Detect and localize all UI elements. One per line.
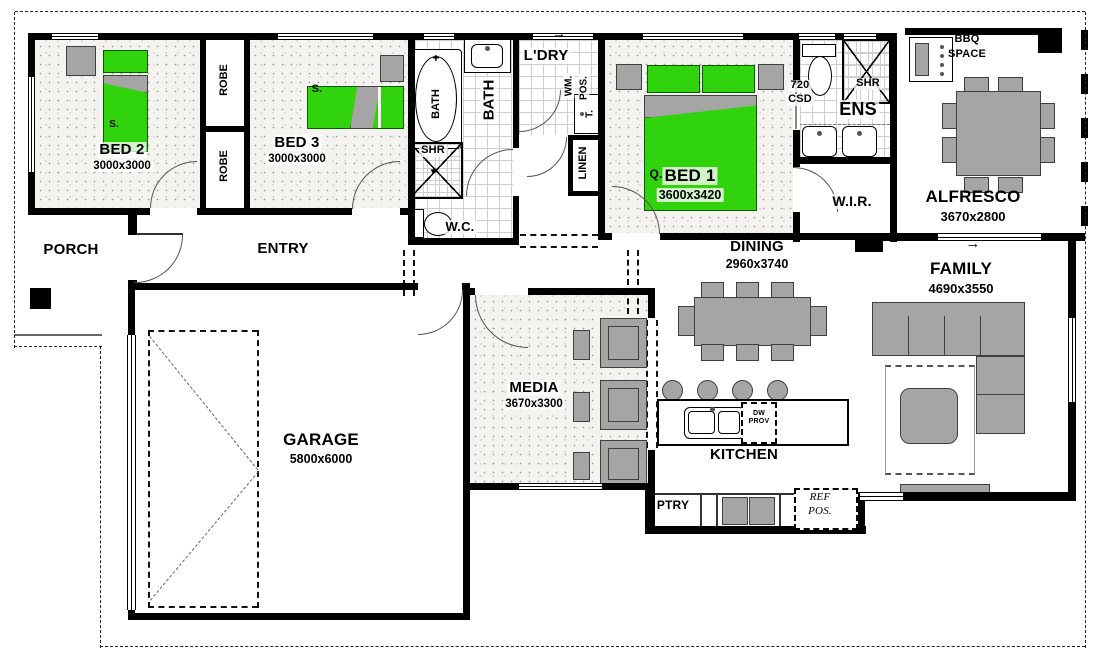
wall-ens-right bbox=[890, 33, 897, 242]
corner-block bbox=[855, 240, 883, 252]
sofa-chaise-icon bbox=[976, 356, 1025, 434]
arrow-right-icon: → bbox=[963, 236, 982, 252]
csd-label: CSD bbox=[786, 94, 814, 106]
chair-icon bbox=[1040, 137, 1055, 163]
door-opening bbox=[612, 233, 660, 240]
garage-template-line bbox=[148, 330, 258, 332]
bathtub-plus-label: + bbox=[430, 52, 441, 65]
porch-post bbox=[30, 288, 51, 309]
bbq-label: BBQ bbox=[952, 34, 981, 46]
bed1-dims: 3600x3420 bbox=[657, 188, 724, 202]
side-table-icon bbox=[616, 64, 642, 90]
sofa-cushion-line bbox=[980, 316, 981, 356]
window bbox=[799, 33, 835, 40]
bbq-plate-icon bbox=[915, 43, 929, 76]
chair-icon bbox=[736, 344, 759, 361]
bench-divider bbox=[700, 495, 702, 526]
corner-block bbox=[1038, 28, 1062, 53]
shower-icon bbox=[842, 39, 891, 104]
side-table-icon bbox=[380, 55, 404, 82]
chair-icon bbox=[771, 344, 794, 361]
door-opening bbox=[352, 208, 400, 215]
alfresco-label: ALFRESCO bbox=[923, 188, 1022, 206]
chair-icon bbox=[942, 103, 957, 129]
tap-icon bbox=[857, 131, 862, 136]
boundary-step bbox=[14, 346, 102, 347]
shower-label: SHR bbox=[854, 78, 882, 90]
ensuite-label: ENS bbox=[837, 100, 879, 119]
wall-bed1-left bbox=[598, 33, 605, 240]
door-opening bbox=[513, 148, 519, 196]
tap-icon bbox=[485, 46, 490, 51]
wall-garage-bottom bbox=[128, 613, 470, 620]
stool-icon bbox=[767, 380, 788, 401]
wall-robe-divider bbox=[200, 126, 250, 132]
bed3-dims: 3000x3000 bbox=[266, 153, 328, 165]
bed-pillow-icon bbox=[647, 65, 700, 93]
family-label: FAMILY bbox=[928, 260, 994, 278]
wall-robe-right bbox=[244, 40, 250, 208]
chair-icon bbox=[809, 306, 827, 336]
sofa-cushion-line bbox=[976, 394, 1025, 395]
dining-dims: 2960x3740 bbox=[724, 257, 791, 271]
window bbox=[1068, 318, 1076, 402]
porch-slab-edge bbox=[14, 334, 102, 336]
window bbox=[519, 483, 602, 490]
washing-machine-label: POS. bbox=[579, 74, 590, 102]
stool-icon bbox=[732, 380, 753, 401]
entry-door-arc bbox=[135, 235, 183, 283]
shower-label: SHR bbox=[419, 145, 447, 157]
side-table-icon bbox=[66, 46, 96, 76]
wall-linen-bottom bbox=[568, 191, 598, 196]
side-table-icon bbox=[573, 452, 590, 480]
chair-icon bbox=[1040, 103, 1055, 129]
wall-kitchen-left-step bbox=[645, 483, 655, 534]
bed1-label: BED 1 bbox=[662, 167, 717, 185]
window bbox=[643, 33, 743, 40]
hall-opening-dash bbox=[520, 234, 598, 236]
window bbox=[860, 492, 903, 501]
recliner-seat-icon bbox=[608, 326, 639, 360]
media-label: MEDIA bbox=[507, 380, 560, 396]
side-table-icon bbox=[573, 392, 590, 422]
fridge-position-label: POS. bbox=[806, 506, 834, 518]
side-table-icon bbox=[758, 64, 784, 90]
side-table-icon bbox=[573, 330, 590, 360]
sliding-door bbox=[938, 233, 1041, 241]
garage-swing-diagonal bbox=[149, 336, 258, 470]
wall-wc-bottom bbox=[408, 238, 518, 245]
shower-head-icon: ▼ bbox=[427, 168, 439, 176]
bench-divider bbox=[716, 495, 718, 526]
bathtub-label: BATH bbox=[430, 87, 442, 121]
boundary-left bbox=[14, 12, 15, 348]
garage-swing-diagonal bbox=[150, 471, 259, 600]
stool-icon bbox=[662, 380, 683, 401]
entry-label: ENTRY bbox=[255, 241, 310, 257]
garage-dims: 5800x6000 bbox=[288, 452, 355, 466]
sofa-icon bbox=[872, 302, 1025, 356]
wir-label: W.I.R. bbox=[830, 194, 873, 209]
bed3-size-label: S. bbox=[310, 84, 325, 96]
fridge-position-label: REF bbox=[808, 492, 833, 504]
bed3-label: BED 3 bbox=[272, 135, 321, 151]
wall-media-right-stub bbox=[648, 288, 655, 318]
sofa-cushion-line bbox=[908, 316, 909, 356]
sink-bowl-icon bbox=[688, 411, 715, 434]
vanity-edge bbox=[794, 124, 890, 125]
dishwasher-label: PROV bbox=[747, 418, 772, 425]
garage-panel-door bbox=[127, 335, 136, 610]
window bbox=[28, 77, 35, 172]
bbq-knob-icon bbox=[940, 72, 944, 76]
wall-bedwing-top bbox=[28, 33, 897, 40]
door-arc bbox=[418, 290, 463, 335]
kitchen-label: KITCHEN bbox=[708, 447, 780, 463]
wall-ens-bottom bbox=[793, 157, 897, 164]
bed-pillow-icon bbox=[103, 50, 148, 73]
boundary-top bbox=[15, 11, 1085, 12]
csd-label: 720 bbox=[789, 80, 812, 92]
robe-label: ROBE bbox=[218, 62, 230, 98]
sofa-cushion-line bbox=[944, 316, 945, 356]
chair-icon bbox=[701, 344, 724, 361]
wall-bath-left bbox=[408, 33, 415, 245]
hall-opening-dash bbox=[520, 246, 598, 248]
door-opening bbox=[150, 208, 197, 215]
dining-label: DINING bbox=[728, 239, 786, 255]
floor-plan: BED 2 3000x3000 S. BED 3 3000x3000 S. BE… bbox=[0, 0, 1093, 660]
recliner-seat-icon bbox=[608, 448, 639, 480]
boundary-left-lower bbox=[100, 346, 101, 648]
bbq-knob-icon bbox=[940, 54, 944, 58]
dishwasher-label: DW bbox=[751, 410, 767, 417]
bed2-size-label: S. bbox=[107, 120, 121, 131]
bed2-dims: 3000x3000 bbox=[91, 160, 153, 172]
alfresco-dims: 3670x2800 bbox=[938, 209, 1007, 224]
bulkhead-dash bbox=[637, 250, 639, 314]
cooktop-icon bbox=[722, 497, 748, 525]
tap-icon bbox=[580, 112, 584, 116]
door-opening bbox=[418, 283, 462, 290]
wall-robe-left bbox=[200, 40, 206, 208]
porch-label: PORCH bbox=[41, 242, 100, 258]
window bbox=[424, 33, 454, 40]
window bbox=[278, 33, 373, 40]
bbq-label: SPACE bbox=[946, 49, 988, 61]
washing-machine-label: WM. bbox=[564, 74, 575, 99]
boundary-bottom bbox=[100, 646, 1085, 647]
arrow-right-icon: → bbox=[550, 26, 568, 41]
trough-label: T. bbox=[585, 108, 596, 120]
linen-label: LINEN bbox=[577, 145, 589, 182]
window bbox=[844, 33, 876, 40]
bulkhead-dash bbox=[627, 250, 629, 314]
wall-linen-left bbox=[568, 135, 573, 196]
door-arc bbox=[527, 137, 567, 177]
window bbox=[52, 33, 98, 40]
bench-divider bbox=[779, 495, 781, 526]
wall-garage-right bbox=[463, 283, 470, 620]
sink-bowl-icon bbox=[718, 411, 740, 434]
media-dims: 3670x3300 bbox=[503, 398, 565, 410]
garage-template-line bbox=[148, 606, 258, 608]
family-dims: 4690x3550 bbox=[926, 281, 995, 296]
bed1-size-label: Q. bbox=[647, 168, 664, 181]
bed-line bbox=[378, 87, 381, 128]
bed2-label: BED 2 bbox=[97, 142, 146, 158]
boundary-right bbox=[1085, 12, 1086, 648]
bbq-knob-icon bbox=[940, 63, 944, 67]
stool-icon bbox=[697, 380, 718, 401]
wc-label: W.C. bbox=[444, 220, 477, 234]
cooktop-icon bbox=[749, 497, 775, 525]
robe-label: ROBE bbox=[218, 148, 230, 184]
dining-table-icon bbox=[694, 297, 811, 346]
bed-pillow-icon bbox=[702, 65, 755, 93]
wall-entry-post bbox=[128, 215, 137, 237]
tap-icon bbox=[817, 131, 822, 136]
garage-label: GARAGE bbox=[281, 431, 361, 449]
ottoman-icon bbox=[900, 388, 958, 444]
outdoor-table-icon bbox=[956, 91, 1041, 176]
laundry-label: L'DRY bbox=[522, 48, 571, 64]
tap-icon bbox=[710, 407, 715, 412]
bath-label: BATH bbox=[481, 78, 498, 123]
wall-bath-laundry bbox=[513, 33, 519, 245]
bbq-knob-icon bbox=[940, 45, 944, 49]
door-opening bbox=[475, 288, 528, 295]
garage-template-line bbox=[148, 330, 150, 608]
pantry-label: PTRY bbox=[655, 499, 691, 512]
chair-icon bbox=[942, 137, 957, 163]
toilet-icon bbox=[808, 56, 832, 96]
recliner-seat-icon bbox=[608, 388, 639, 422]
